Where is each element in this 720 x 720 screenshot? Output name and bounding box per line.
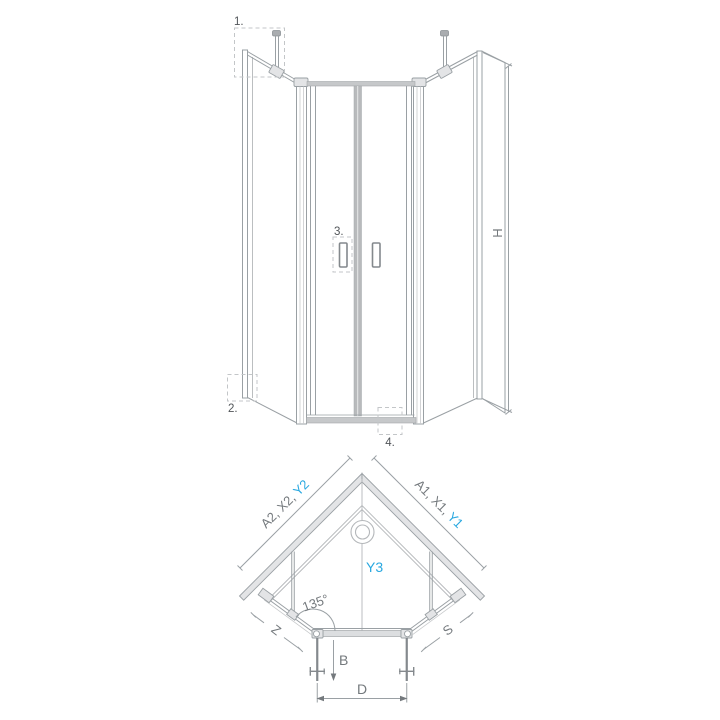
height-label: H	[490, 228, 505, 237]
shower-enclosure-technical-drawing: 1. 2. 3. 4. H A2, X2, Y2	[0, 0, 720, 720]
right-front-post	[414, 87, 424, 425]
wall-dimension-left: A2, X2, Y2	[238, 456, 353, 571]
drain-icon	[351, 521, 374, 544]
door-width-label: B	[339, 652, 348, 668]
entry-width-dimension: D	[317, 681, 408, 703]
right-wall-profile	[477, 51, 482, 399]
support-rod-left	[269, 31, 285, 79]
rod-left-bracket	[269, 64, 285, 78]
right-side-label: S	[440, 621, 456, 638]
rod-right-cap	[441, 31, 449, 37]
callout-2-label: 2.	[228, 403, 238, 415]
door-width-dimension: B	[331, 640, 349, 681]
callout-3-label: 3.	[334, 226, 344, 238]
left-post-cap	[294, 78, 308, 87]
support-rod-right	[437, 31, 453, 79]
wall-dimension-right: A1, X1, Y1	[372, 456, 487, 571]
depth-label: Y3	[366, 559, 383, 575]
door-top-rail	[307, 82, 415, 87]
right-bottom-edge	[424, 398, 478, 423]
plan-view: A2, X2, Y2 A1, X1, Y1 Y3	[238, 456, 487, 703]
height-dimension: H	[483, 53, 512, 415]
right-side-panel	[409, 588, 466, 634]
front-threshold	[323, 631, 401, 637]
left-wall-profile	[243, 50, 248, 398]
callout-1-label: 1.	[234, 16, 244, 28]
angle-label: 135°	[300, 591, 330, 614]
angle-annotation: 135°	[296, 591, 335, 631]
elevation-view: 1. 2. 3. 4. H	[228, 16, 513, 449]
door-threshold	[307, 418, 417, 424]
door-handle-right	[373, 243, 381, 267]
left-side-label: Z	[269, 622, 285, 639]
callout-4-label: 4.	[385, 437, 395, 449]
drawing-canvas: 1. 2. 3. 4. H A2, X2, Y2	[0, 0, 720, 720]
door-handle-left	[340, 243, 348, 267]
right-top-rail-outer	[424, 52, 478, 81]
entry-width-label: D	[357, 681, 367, 697]
rod-left-cap	[273, 31, 281, 37]
left-front-post	[297, 87, 307, 425]
